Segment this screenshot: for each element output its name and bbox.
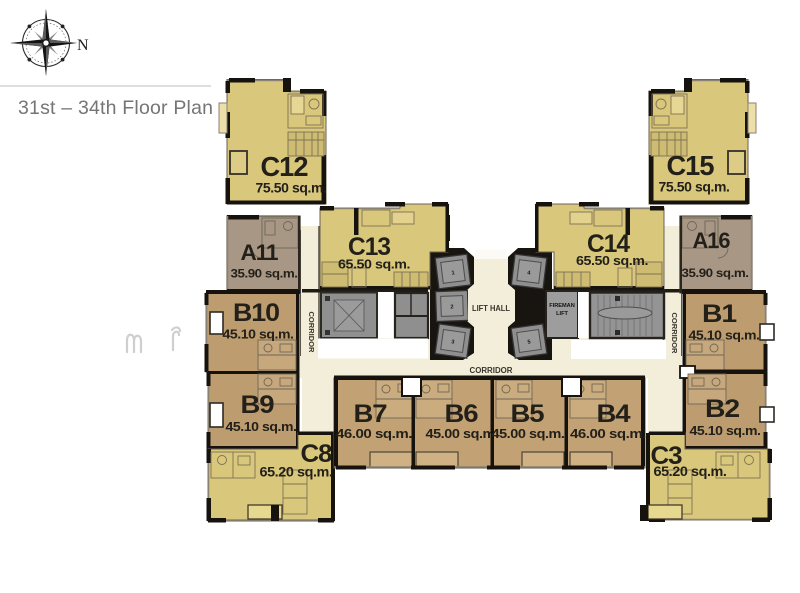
svg-text:75.50 sq.m.: 75.50 sq.m. bbox=[256, 181, 327, 196]
svg-text:45.10 sq.m.: 45.10 sq.m. bbox=[690, 424, 761, 438]
svg-text:B6: B6 bbox=[445, 400, 478, 428]
svg-text:31st – 34th Floor Plan: 31st – 34th Floor Plan bbox=[18, 97, 213, 119]
svg-text:A11: A11 bbox=[241, 240, 279, 265]
svg-text:45.10 sq.m.: 45.10 sq.m. bbox=[226, 420, 297, 434]
svg-text:LIFT: LIFT bbox=[556, 311, 568, 317]
svg-text:N: N bbox=[77, 37, 89, 54]
svg-text:45.00 sq.m.: 45.00 sq.m. bbox=[492, 426, 565, 441]
svg-text:46.00 sq.m.: 46.00 sq.m. bbox=[336, 426, 412, 441]
svg-text:CORRIDOR: CORRIDOR bbox=[307, 312, 316, 354]
svg-text:B4: B4 bbox=[597, 400, 631, 428]
svg-text:C12: C12 bbox=[261, 151, 308, 182]
svg-text:B1: B1 bbox=[702, 300, 737, 328]
svg-text:46.00 sq.m.: 46.00 sq.m. bbox=[570, 426, 646, 441]
svg-text:65.50 sq.m.: 65.50 sq.m. bbox=[576, 253, 648, 268]
svg-text:CORRIDOR: CORRIDOR bbox=[670, 313, 679, 355]
svg-text:A16: A16 bbox=[693, 228, 731, 253]
svg-text:B2: B2 bbox=[705, 395, 739, 423]
svg-text:2: 2 bbox=[450, 304, 453, 310]
svg-text:FIREMAN: FIREMAN bbox=[549, 303, 574, 309]
svg-text:65.20 sq.m.: 65.20 sq.m. bbox=[260, 465, 333, 480]
svg-text:LIFT HALL: LIFT HALL bbox=[472, 304, 510, 313]
svg-text:B7: B7 bbox=[354, 400, 387, 428]
svg-text:B9: B9 bbox=[241, 391, 274, 419]
svg-text:CORRIDOR: CORRIDOR bbox=[470, 366, 513, 375]
svg-text:45.00 sq.m.: 45.00 sq.m. bbox=[426, 426, 499, 441]
svg-text:B10: B10 bbox=[233, 299, 279, 327]
svg-text:45.10 sq.m.: 45.10 sq.m. bbox=[223, 328, 294, 342]
svg-text:35.90 sq.m.: 35.90 sq.m. bbox=[682, 266, 749, 280]
svg-text:B5: B5 bbox=[511, 400, 545, 428]
svg-text:C15: C15 bbox=[667, 150, 714, 181]
svg-text:45.10 sq.m.: 45.10 sq.m. bbox=[689, 329, 760, 343]
svg-text:75.50 sq.m.: 75.50 sq.m. bbox=[659, 180, 730, 195]
svg-text:65.20 sq.m.: 65.20 sq.m. bbox=[654, 464, 727, 479]
svg-text:65.50 sq.m.: 65.50 sq.m. bbox=[338, 257, 410, 272]
svg-text:35.90 sq.m.: 35.90 sq.m. bbox=[231, 267, 298, 281]
